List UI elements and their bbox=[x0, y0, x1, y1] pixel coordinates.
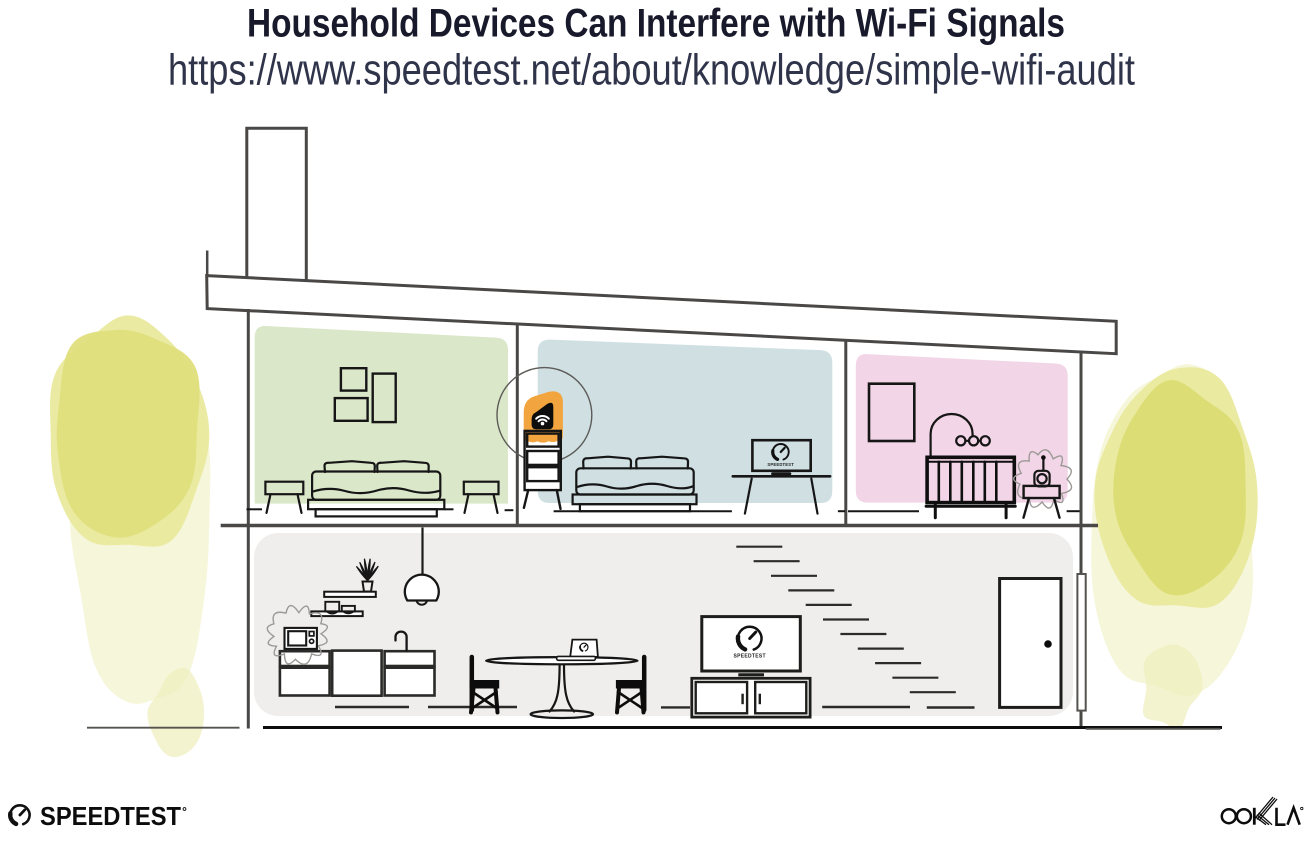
svg-text:SPEEDTEST: SPEEDTEST bbox=[767, 462, 794, 467]
svg-text:SPEEDTEST: SPEEDTEST bbox=[733, 654, 765, 660]
svg-text:https://www.speedtest.net/abou: https://www.speedtest.net/about/knowledg… bbox=[168, 46, 1135, 95]
svg-text:Household Devices Can Interfer: Household Devices Can Interfere with Wi-… bbox=[247, 2, 1065, 46]
svg-text:SPEEDTEST: SPEEDTEST bbox=[40, 803, 181, 831]
